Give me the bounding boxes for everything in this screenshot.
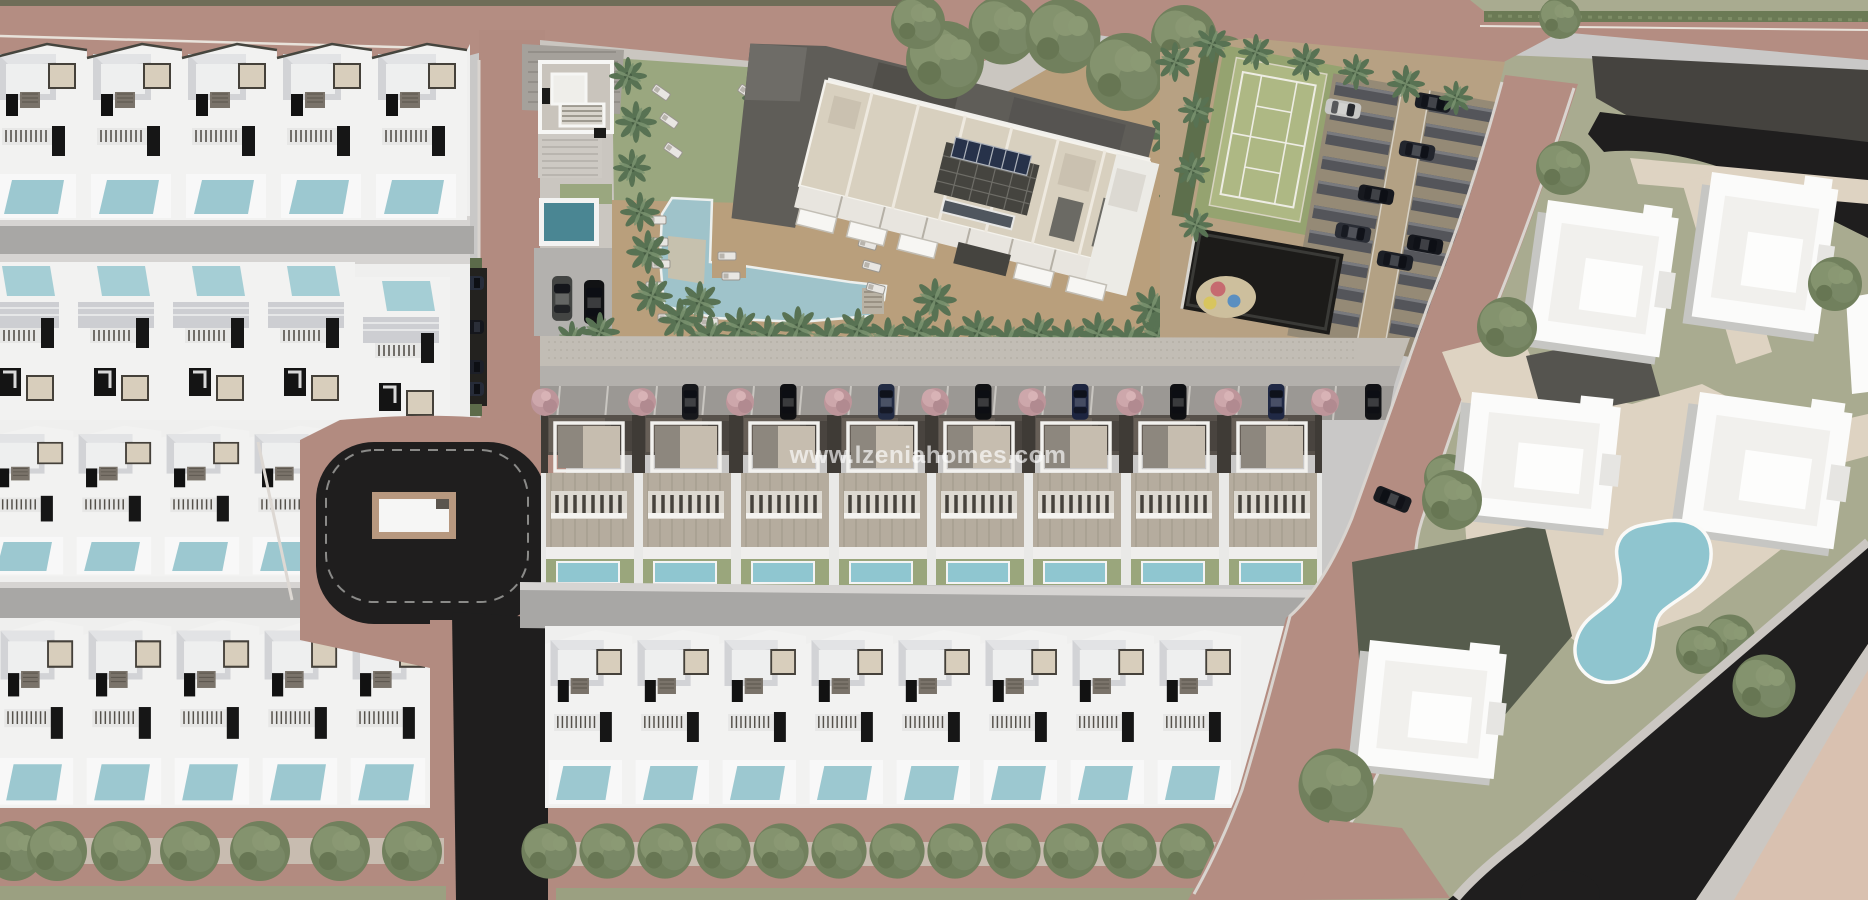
svg-text:www.lzeniahomes.com: www.lzeniahomes.com xyxy=(789,442,1067,469)
